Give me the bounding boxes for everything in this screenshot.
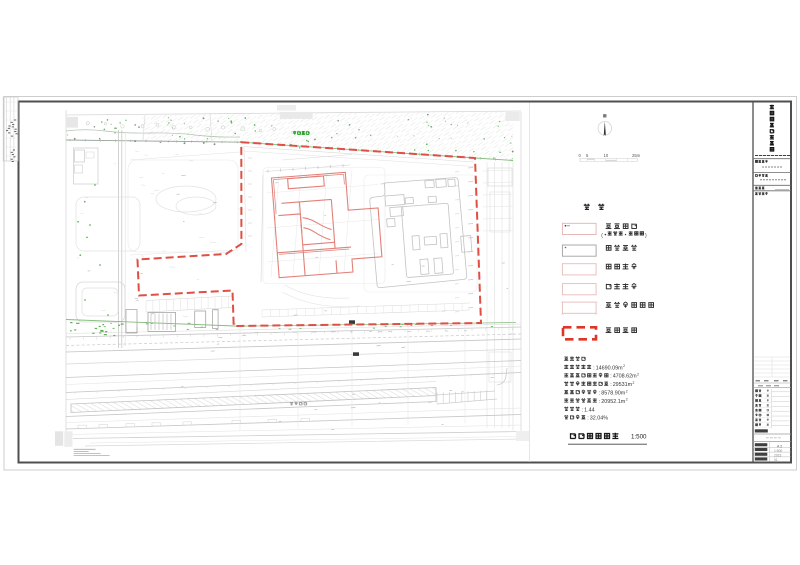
svg-text::: : [599, 399, 601, 405]
svg-text:29531m: 29531m [613, 382, 633, 388]
svg-text:1.44: 1.44 [584, 407, 595, 413]
svg-text::: : [587, 416, 589, 422]
svg-text:14690.09m: 14690.09m [596, 365, 623, 371]
svg-text::: : [610, 382, 612, 388]
svg-text:2023: 2023 [774, 454, 782, 458]
svg-text:8578.90m: 8578.90m [601, 391, 625, 397]
svg-text::: : [582, 407, 584, 413]
svg-text:2: 2 [623, 364, 625, 368]
svg-text:10: 10 [604, 153, 609, 158]
svg-text:2: 2 [626, 389, 628, 393]
svg-text:4708.62m: 4708.62m [613, 374, 637, 380]
svg-text:25m: 25m [632, 153, 641, 158]
svg-text:1:500: 1:500 [631, 434, 647, 441]
svg-text:32.04%: 32.04% [590, 416, 608, 422]
svg-text:2: 2 [633, 381, 635, 385]
svg-text::: : [599, 391, 601, 397]
svg-text:2: 2 [626, 398, 628, 402]
svg-text::: : [610, 374, 612, 380]
svg-text::: : [593, 365, 595, 371]
svg-text:2: 2 [637, 373, 639, 377]
svg-text:01: 01 [774, 458, 778, 462]
svg-text:1:500: 1:500 [774, 449, 782, 453]
svg-text:20952.1m: 20952.1m [601, 399, 625, 405]
